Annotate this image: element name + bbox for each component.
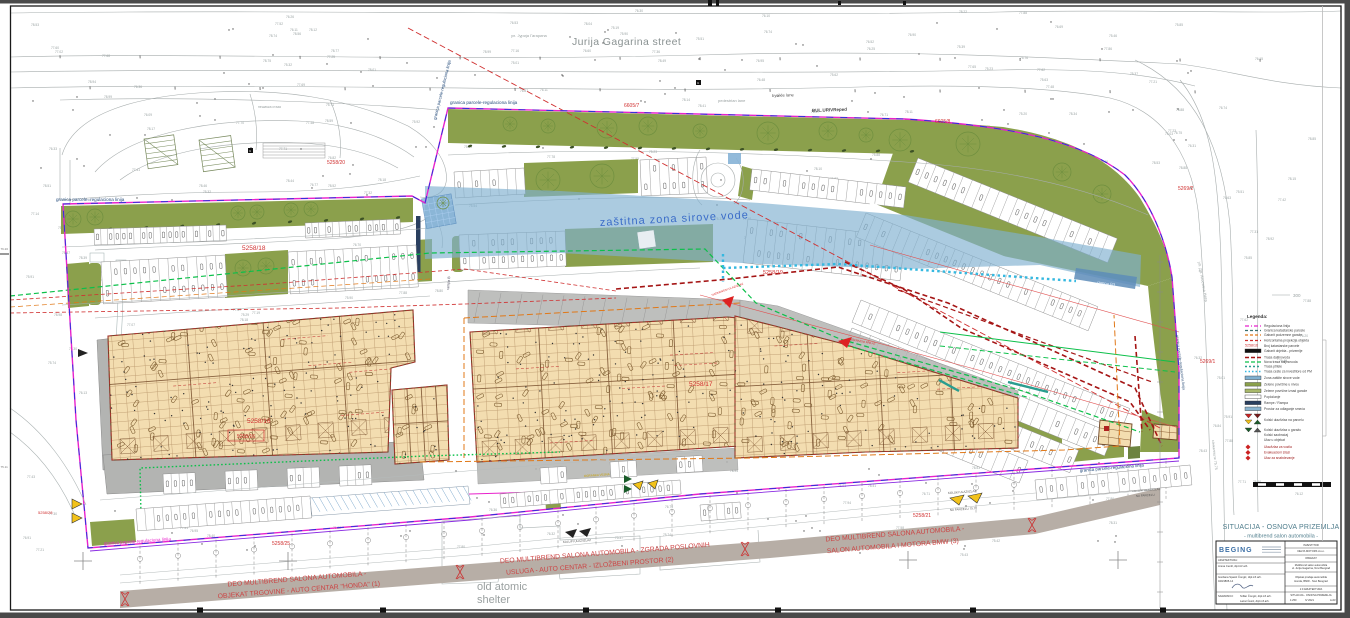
svg-text:78.99: 78.99 xyxy=(104,95,112,99)
svg-text:77.86: 77.86 xyxy=(1104,47,1112,51)
svg-text:76.26: 76.26 xyxy=(286,15,294,19)
svg-text:OBJEKAT: OBJEKAT xyxy=(1305,556,1317,560)
svg-text:75.23: 75.23 xyxy=(985,67,993,71)
svg-text:76.36: 76.36 xyxy=(489,508,497,512)
svg-text:Ulaz/izlaz za vozila: Ulaz/izlaz za vozila xyxy=(1264,445,1292,449)
svg-text:77.48: 77.48 xyxy=(1046,85,1054,89)
svg-text:78.12: 78.12 xyxy=(309,28,317,32)
svg-text:Popločanje: Popločanje xyxy=(1264,395,1280,399)
svg-text:Zona zaštite sirove vode: Zona zaštite sirove vode xyxy=(1264,376,1300,380)
svg-text:5258/28: 5258/28 xyxy=(38,510,53,515)
svg-text:78.17: 78.17 xyxy=(147,127,155,131)
svg-text:77.80: 77.80 xyxy=(457,545,465,549)
svg-text:Kolski ulaz/izlaz u garažu: Kolski ulaz/izlaz u garažu xyxy=(1264,428,1301,432)
svg-text:77.68: 77.68 xyxy=(102,54,110,58)
svg-text:78.88: 78.88 xyxy=(1179,166,1187,170)
svg-text:78.43: 78.43 xyxy=(1199,449,1207,453)
svg-text:78.39: 78.39 xyxy=(79,256,87,260)
svg-text:Kolski saobraćaj: Kolski saobraćaj xyxy=(1264,433,1288,437)
svg-text:Nova trasa daljinovoda: Nova trasa daljinovoda xyxy=(1264,360,1298,364)
svg-text:5258/16: 5258/16 xyxy=(1245,344,1258,348)
svg-text:78.98: 78.98 xyxy=(54,313,62,317)
svg-text:78.11: 78.11 xyxy=(905,110,913,114)
svg-text:76.63: 76.63 xyxy=(1223,196,1231,200)
svg-text:Trasa ptitele: Trasa ptitele xyxy=(1264,365,1282,369)
svg-text:77.48: 77.48 xyxy=(306,121,314,125)
svg-text:78.31: 78.31 xyxy=(1109,521,1117,525)
svg-text:78.75: 78.75 xyxy=(263,59,271,63)
svg-text:Ulaz u objekat: Ulaz u objekat xyxy=(1264,438,1285,442)
svg-text:76.95: 76.95 xyxy=(190,529,198,533)
svg-text:76.71: 76.71 xyxy=(922,492,930,496)
svg-text:76.15: 76.15 xyxy=(1255,57,1263,61)
svg-text:77.60: 77.60 xyxy=(51,46,59,50)
svg-text:76.32: 76.32 xyxy=(547,532,555,536)
svg-text:Honda, BMW - Novi Beograd: Honda, BMW - Novi Beograd xyxy=(1294,579,1328,583)
svg-text:77.69: 77.69 xyxy=(297,83,305,87)
svg-text:77.88: 77.88 xyxy=(1303,299,1311,303)
svg-text:Jurija Gagarina street: Jurija Gagarina street xyxy=(572,36,681,48)
svg-text:78.85: 78.85 xyxy=(1308,137,1316,141)
svg-text:77.21: 77.21 xyxy=(36,548,44,552)
svg-text:DELTA MOTORS d.o.o.: DELTA MOTORS d.o.o. xyxy=(1297,549,1324,553)
svg-text:75.91: 75.91 xyxy=(1224,415,1232,419)
svg-text:78.88: 78.88 xyxy=(1176,108,1184,112)
svg-text:shelter: shelter xyxy=(477,594,510,606)
svg-text:1:0 ARHITEKTURA: 1:0 ARHITEKTURA xyxy=(1300,587,1323,591)
svg-text:78.53: 78.53 xyxy=(31,23,39,27)
svg-text:Ulaz za snabdevanje: Ulaz za snabdevanje xyxy=(1264,456,1295,460)
svg-text:75.91: 75.91 xyxy=(26,275,34,279)
svg-text:76.53: 76.53 xyxy=(510,21,518,25)
svg-text:76.71: 76.71 xyxy=(880,113,888,117)
svg-text:77.02: 77.02 xyxy=(55,50,63,54)
svg-text:77.21: 77.21 xyxy=(1149,80,1157,84)
svg-text:SITUACIJA - OSNOVA PRIZEMLJA: SITUACIJA - OSNOVA PRIZEMLJA xyxy=(1223,524,1340,531)
svg-text:78.94: 78.94 xyxy=(88,80,96,84)
svg-text:old atomic: old atomic xyxy=(477,581,528,593)
svg-text:Legenda:: Legenda: xyxy=(1247,314,1268,319)
svg-text:76.91: 76.91 xyxy=(23,536,31,540)
svg-text:Broj katastarske parcele: Broj katastarske parcele xyxy=(1264,344,1300,348)
svg-text:5258/16: 5258/16 xyxy=(247,418,271,425)
svg-text:77.19: 77.19 xyxy=(252,311,260,315)
svg-text:78.77: 78.77 xyxy=(331,49,339,53)
svg-text:76.09: 76.09 xyxy=(144,113,152,117)
svg-text:78.44: 78.44 xyxy=(286,179,294,183)
svg-text:78.53: 78.53 xyxy=(1152,161,1160,165)
svg-text:78.18: 78.18 xyxy=(378,178,386,182)
svg-text:5269/1: 5269/1 xyxy=(1200,359,1216,365)
svg-text:77.70: 77.70 xyxy=(236,121,244,125)
svg-text:A-03: A-03 xyxy=(1330,598,1336,602)
svg-text:78.46: 78.46 xyxy=(199,184,207,188)
svg-text:75.43: 75.43 xyxy=(960,553,968,557)
svg-text:6605/7: 6605/7 xyxy=(624,103,640,109)
svg-text:78.15: 78.15 xyxy=(1288,177,1296,181)
svg-text:пешачка стаза: пешачка стаза xyxy=(258,105,281,109)
svg-text:75.29: 75.29 xyxy=(241,313,249,317)
svg-text:Arena Centil, dipl.inž.arh.: Arena Centil, dipl.inž.arh. xyxy=(1218,564,1248,568)
svg-text:040/4805-14: 040/4805-14 xyxy=(1218,579,1234,583)
svg-text:77.71: 77.71 xyxy=(1238,480,1246,484)
svg-text:75.76: 75.76 xyxy=(1020,56,1028,60)
svg-text:5258/17: 5258/17 xyxy=(689,381,713,388)
svg-text:76.77: 76.77 xyxy=(310,183,318,187)
svg-text:76.31: 76.31 xyxy=(1188,144,1196,148)
svg-text:78.41: 78.41 xyxy=(698,104,706,108)
svg-text:77.07: 77.07 xyxy=(127,323,135,327)
svg-text:75.30: 75.30 xyxy=(69,347,77,351)
svg-text:76.13: 76.13 xyxy=(79,391,87,395)
svg-text:Granica katastarske parcele: Granica katastarske parcele xyxy=(1264,329,1305,333)
svg-text:78.56: 78.56 xyxy=(293,32,301,36)
svg-text:76.25: 76.25 xyxy=(867,47,875,51)
svg-text:granica parcele=regulaciona li: granica parcele=regulaciona linija xyxy=(56,197,125,202)
svg-text:ARHITEKTURA:: ARHITEKTURA: xyxy=(1218,558,1238,562)
svg-text:76.74: 76.74 xyxy=(1219,106,1227,110)
svg-text:75.20: 75.20 xyxy=(1019,112,1027,116)
svg-text:INVESTITOR: INVESTITOR xyxy=(1303,543,1319,547)
svg-text:76.48: 76.48 xyxy=(757,78,765,82)
svg-text:Prostor za odlaganje smeća: Prostor za odlaganje smeća xyxy=(1264,407,1305,411)
svg-text:75.62: 75.62 xyxy=(830,73,838,77)
svg-text:75.51: 75.51 xyxy=(696,37,704,41)
svg-text:u: u xyxy=(249,149,251,153)
svg-text:Gabarit podzemne garaže: Gabarit podzemne garaže xyxy=(1264,333,1302,337)
svg-text:77.62: 77.62 xyxy=(1037,68,1045,72)
svg-text:76.75: 76.75 xyxy=(1174,131,1182,135)
svg-text:76.36: 76.36 xyxy=(134,85,142,89)
svg-text:u: u xyxy=(697,81,699,85)
svg-text:75.39: 75.39 xyxy=(957,45,965,49)
svg-text:75.01: 75.01 xyxy=(1217,376,1225,380)
svg-text:75.03: 75.03 xyxy=(1165,132,1173,136)
svg-text:Zelene površine u nivou: Zelene površine u nivou xyxy=(1264,383,1299,387)
svg-text:75.01: 75.01 xyxy=(511,61,519,65)
svg-text:76.33: 76.33 xyxy=(49,147,57,151)
svg-text:76.84: 76.84 xyxy=(1213,424,1221,428)
svg-text:76.69: 76.69 xyxy=(1055,25,1063,29)
svg-text:76.20: 76.20 xyxy=(1,247,9,251)
svg-text:75.11: 75.11 xyxy=(1,465,9,469)
svg-text:77.42: 77.42 xyxy=(1278,198,1286,202)
svg-text:76.11: 76.11 xyxy=(540,88,548,92)
svg-text:Rampe / Rampa: Rampe / Rampa xyxy=(1264,401,1288,405)
svg-text:78.34: 78.34 xyxy=(1069,112,1077,116)
svg-text:6605/8: 6605/8 xyxy=(935,119,951,125)
svg-text:Trasa ceste za investitore od: Trasa ceste za investitore od PM xyxy=(1264,370,1312,374)
svg-text:bycikle lane: bycikle lane xyxy=(772,92,795,98)
svg-text:78.01: 78.01 xyxy=(368,68,376,72)
svg-text:75.19: 75.19 xyxy=(611,26,619,30)
svg-text:SITUACIJA - OSNOVA PRIZEMLJA: SITUACIJA - OSNOVA PRIZEMLJA xyxy=(1290,593,1331,597)
svg-text:77.88: 77.88 xyxy=(1019,11,1027,15)
svg-text:5258/19: 5258/19 xyxy=(763,270,783,276)
svg-text:75.51: 75.51 xyxy=(1236,190,1244,194)
svg-text:77.88: 77.88 xyxy=(399,291,407,295)
svg-text:- multibrend salon automobila: - multibrend salon automobila - xyxy=(1244,534,1318,540)
svg-text:pedestrian lane: pedestrian lane xyxy=(718,98,746,103)
svg-text:75.90: 75.90 xyxy=(345,296,353,300)
svg-text:75.32: 75.32 xyxy=(284,63,292,67)
svg-text:5258/25: 5258/25 xyxy=(272,541,290,547)
svg-text:300: 300 xyxy=(1293,293,1301,298)
svg-text:78.92: 78.92 xyxy=(1266,237,1274,241)
svg-text:77.78: 77.78 xyxy=(547,155,555,159)
svg-text:78.51: 78.51 xyxy=(43,184,51,188)
svg-text:Objekat prodaje automobila: Objekat prodaje automobila xyxy=(1295,575,1327,579)
svg-text:IV 2021: IV 2021 xyxy=(1305,598,1314,602)
svg-text:Regulaciona linija: Regulaciona linija xyxy=(1264,324,1290,328)
svg-text:77.88: 77.88 xyxy=(1225,439,1233,443)
svg-text:5258/16: 5258/16 xyxy=(237,434,255,440)
svg-text:78.99: 78.99 xyxy=(483,50,491,54)
svg-text:Gabarit objekta - prizemlje: Gabarit objekta - prizemlje xyxy=(1264,349,1303,353)
svg-text:5258/18: 5258/18 xyxy=(242,245,266,252)
svg-text:75.37: 75.37 xyxy=(615,536,623,540)
svg-text:76.95: 76.95 xyxy=(756,59,764,63)
svg-text:Zelene površine iznad garaže: Zelene površine iznad garaže xyxy=(1264,389,1307,393)
svg-text:78.22: 78.22 xyxy=(959,10,967,14)
svg-text:78.49: 78.49 xyxy=(658,59,666,63)
svg-text:78.59: 78.59 xyxy=(325,119,333,123)
svg-text:76.12: 76.12 xyxy=(1295,492,1303,496)
svg-text:5258/20: 5258/20 xyxy=(327,160,345,166)
svg-text:5258/21: 5258/21 xyxy=(913,513,931,519)
svg-text:76.60: 76.60 xyxy=(583,49,591,53)
svg-text:Trasa daljinovoda: Trasa daljinovoda xyxy=(1264,356,1290,360)
svg-text:77.65: 77.65 xyxy=(968,65,976,69)
svg-text:78.14: 78.14 xyxy=(682,98,690,102)
svg-text:1:250: 1:250 xyxy=(1290,598,1297,602)
svg-text:75.37: 75.37 xyxy=(1130,72,1138,76)
svg-text:76.52: 76.52 xyxy=(866,40,874,44)
svg-text:78.80: 78.80 xyxy=(435,289,443,293)
svg-text:5269/2: 5269/2 xyxy=(1178,186,1194,192)
svg-text:77.31: 77.31 xyxy=(1250,230,1258,234)
svg-text:75.85: 75.85 xyxy=(1244,256,1252,260)
svg-text:78.10: 78.10 xyxy=(814,167,822,171)
svg-text:78.52: 78.52 xyxy=(328,184,336,188)
svg-text:76.30: 76.30 xyxy=(635,9,643,13)
svg-text:75.88: 75.88 xyxy=(872,153,880,157)
svg-text:77.14: 77.14 xyxy=(31,212,39,216)
svg-text:SARADNICI:: SARADNICI: xyxy=(1218,594,1234,598)
svg-text:77.16: 77.16 xyxy=(511,49,519,53)
svg-text:granica parcele-regulaciona li: granica parcele-regulaciona linija xyxy=(450,100,518,105)
svg-text:76.74: 76.74 xyxy=(764,30,772,34)
svg-text:75.42: 75.42 xyxy=(992,539,1000,543)
svg-text:75.23: 75.23 xyxy=(649,150,657,154)
svg-text:76.70: 76.70 xyxy=(353,243,361,247)
svg-text:76.10: 76.10 xyxy=(762,14,770,18)
svg-text:77.25: 77.25 xyxy=(327,55,335,59)
svg-text:77.41: 77.41 xyxy=(132,168,140,172)
svg-text:77.71: 77.71 xyxy=(279,147,287,151)
svg-text:75.92: 75.92 xyxy=(412,120,420,124)
svg-text:75.85: 75.85 xyxy=(1175,23,1183,27)
svg-text:BEGING: BEGING xyxy=(1219,547,1253,554)
svg-text:76.90: 76.90 xyxy=(908,33,916,37)
svg-text:77.94: 77.94 xyxy=(843,501,851,505)
svg-text:75.74: 75.74 xyxy=(48,361,56,365)
svg-text:77.43: 77.43 xyxy=(27,475,35,479)
svg-text:75.63: 75.63 xyxy=(1040,78,1048,82)
svg-text:75.32: 75.32 xyxy=(203,190,211,194)
svg-text:Kolski ulaz/izlaz na parcelu: Kolski ulaz/izlaz na parcelu xyxy=(1264,418,1304,422)
svg-text:77.36: 77.36 xyxy=(652,50,660,54)
svg-text:78.74: 78.74 xyxy=(269,34,277,38)
svg-text:ул. Јурија Гагарина: ул. Јурија Гагарина xyxy=(511,33,548,38)
svg-text:75.46: 75.46 xyxy=(1109,34,1117,38)
svg-text:ul. Jurija Gagarina, Novi Beog: ul. Jurija Gagarina, Novi Beograd xyxy=(1292,566,1331,570)
svg-text:78.04: 78.04 xyxy=(584,22,592,26)
svg-text:75.74: 75.74 xyxy=(663,533,671,537)
svg-text:Evakuacioni izlazi: Evakuacioni izlazi xyxy=(1264,451,1290,455)
svg-text:78.18: 78.18 xyxy=(240,318,248,322)
svg-text:77.52: 77.52 xyxy=(275,22,283,26)
svg-text:75.71: 75.71 xyxy=(326,103,334,107)
svg-text:Horizontalna projekcija objekt: Horizontalna projekcija objekta xyxy=(1264,339,1309,343)
svg-text:77.32: 77.32 xyxy=(364,191,372,195)
